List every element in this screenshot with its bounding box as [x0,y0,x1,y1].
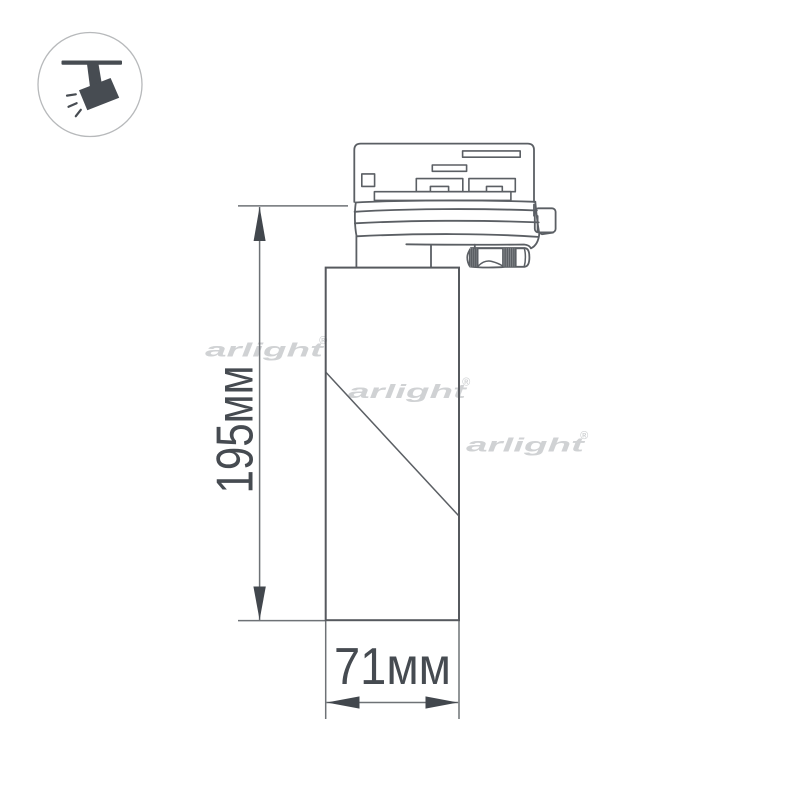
svg-text:®: ® [462,377,471,389]
svg-text:arlight: arlight [348,381,468,403]
svg-text:®: ® [580,430,589,442]
svg-text:arlight: arlight [466,434,586,456]
svg-text:71мм: 71мм [334,638,451,695]
svg-text:arlight: arlight [205,339,325,361]
svg-text:195мм: 195мм [206,366,264,494]
